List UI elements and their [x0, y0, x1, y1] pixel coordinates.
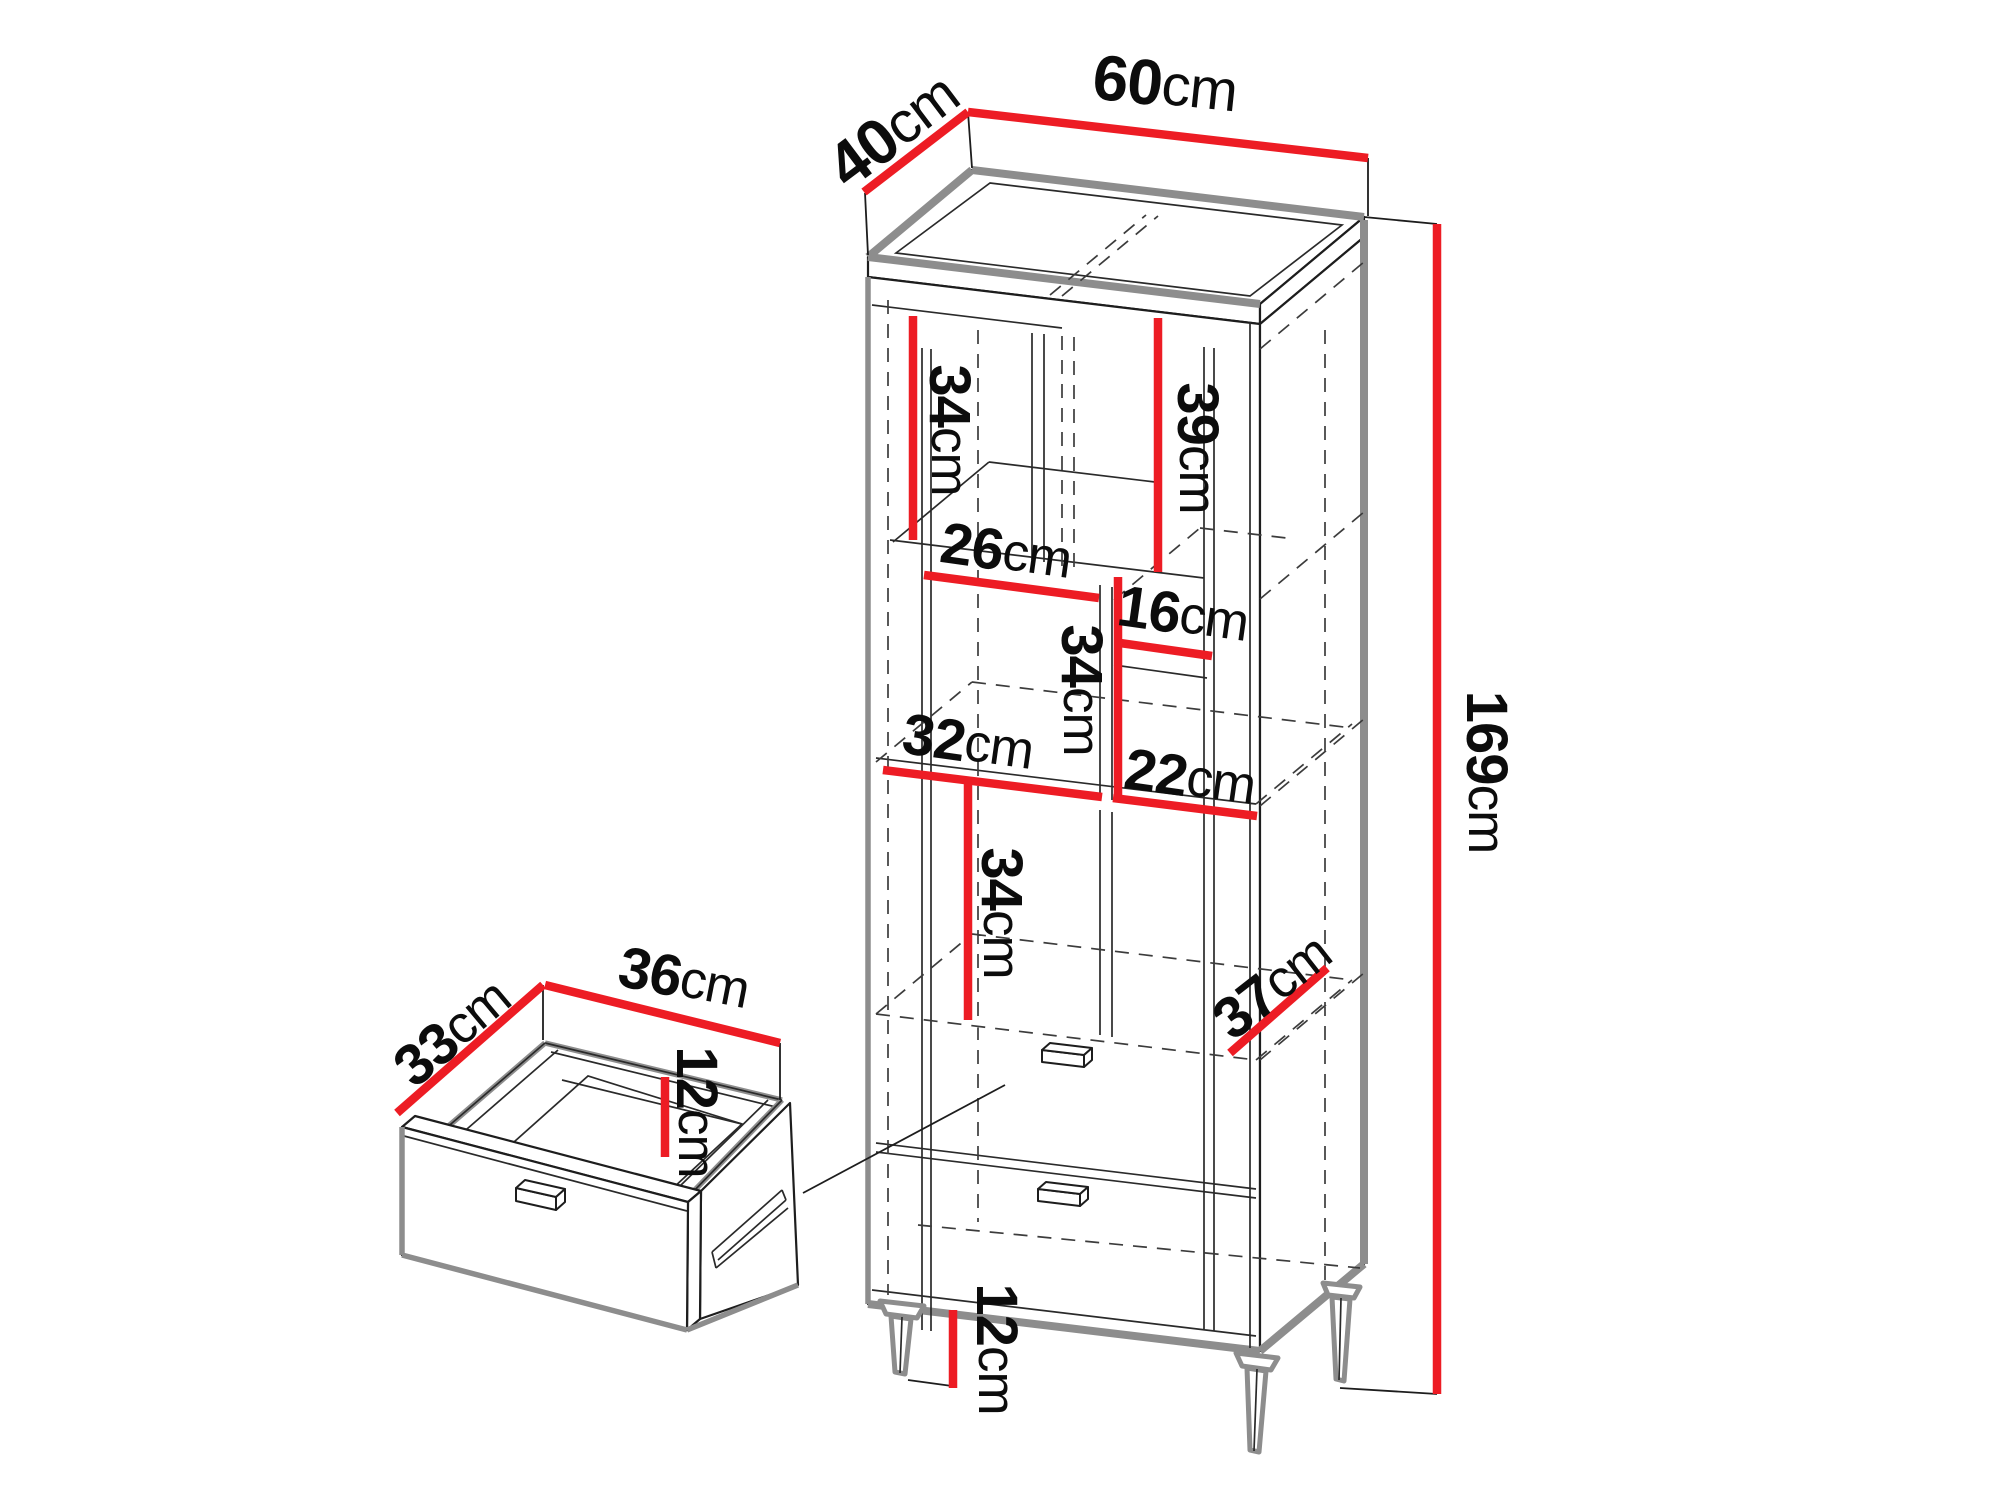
dim-label-drawer-height: 12cm [665, 1046, 730, 1177]
dim-label-upper-left-height: 34cm [918, 364, 983, 495]
diagram-canvas: 40cm 60cm 169cm 34cm 39cm 26cm 16cm 34cm… [0, 0, 2000, 1500]
dim-label-total-height: 169cm [1455, 691, 1520, 853]
dim-label-middle-height: 34cm [1050, 624, 1115, 755]
dim-label-leg-height: 12cm [965, 1283, 1030, 1414]
drawer-front-panel-side [687, 1191, 701, 1330]
dim-label-top-width: 60cm [1089, 41, 1240, 128]
cabinet-right-face [1260, 237, 1364, 1351]
dim-label-upper-right-height: 39cm [1166, 382, 1231, 513]
drawer-detail-drawing [402, 1043, 798, 1330]
cabinet-drawing [868, 170, 1364, 1452]
dim-line-top-width [968, 112, 1368, 158]
dim-label-lower-height: 34cm [970, 847, 1035, 978]
front-right-leg [1236, 1353, 1278, 1452]
furniture-dimension-diagram: 40cm 60cm 169cm 34cm 39cm 26cm 16cm 34cm… [0, 0, 2000, 1500]
front-left-leg [880, 1301, 924, 1374]
